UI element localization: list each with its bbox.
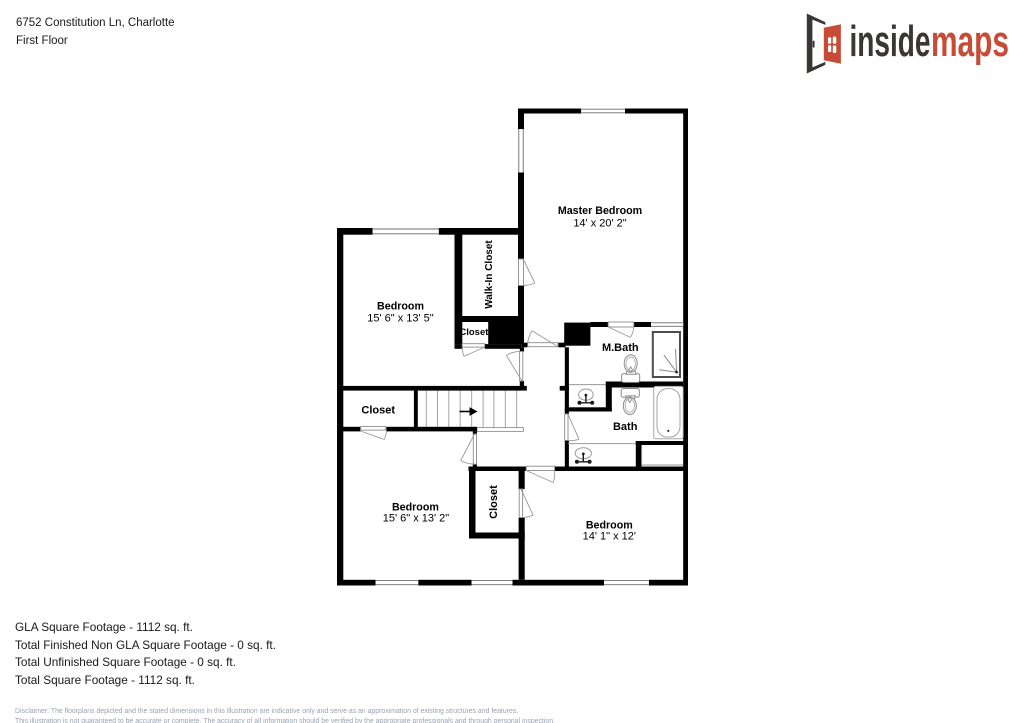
svg-text:Bedroom: Bedroom: [377, 301, 424, 313]
svg-text:Master Bedroom: Master Bedroom: [558, 205, 642, 217]
svg-text:M.Bath: M.Bath: [602, 342, 639, 354]
svg-text:14' x 20' 2": 14' x 20' 2": [573, 218, 626, 230]
svg-text:Closet: Closet: [459, 327, 489, 338]
svg-text:Closet: Closet: [361, 405, 395, 417]
svg-text:Bath: Bath: [613, 421, 638, 433]
svg-text:15' 6" x 13' 5": 15' 6" x 13' 5": [367, 313, 434, 325]
svg-text:14' 1" x 12': 14' 1" x 12': [583, 531, 636, 543]
svg-text:Closet: Closet: [488, 485, 500, 519]
svg-text:Walk-In Closet: Walk-In Closet: [484, 240, 495, 309]
svg-text:15' 6" x 13' 2": 15' 6" x 13' 2": [383, 513, 450, 525]
